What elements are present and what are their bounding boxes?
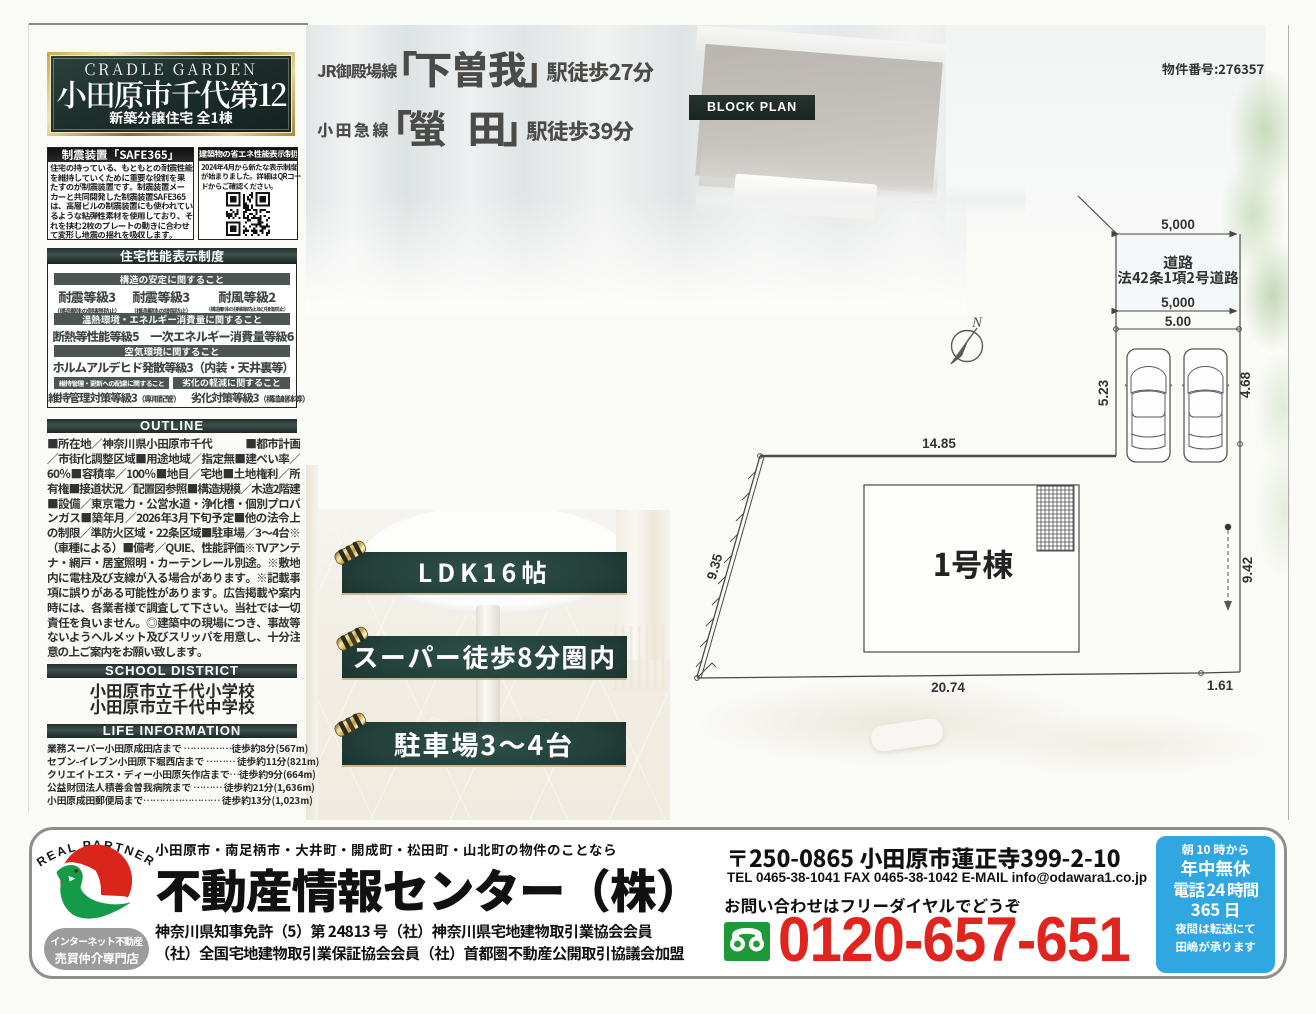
svg-text:1号棟: 1号棟 [933, 540, 1013, 585]
svg-text:N: N [971, 315, 983, 331]
svg-text:1.61: 1.61 [1207, 678, 1234, 693]
svg-text:9.35: 9.35 [704, 552, 726, 582]
svg-text:5.00: 5.00 [1165, 314, 1191, 329]
svg-text:5,000: 5,000 [1161, 295, 1195, 310]
svg-text:14.85: 14.85 [922, 436, 956, 451]
svg-text:20.74: 20.74 [931, 680, 965, 695]
svg-text:9.42: 9.42 [1240, 557, 1255, 583]
svg-text:5.23: 5.23 [1096, 379, 1111, 406]
svg-text:4.68: 4.68 [1238, 371, 1253, 398]
svg-text:法42条1項2号道路: 法42条1項2号道路 [1117, 267, 1238, 288]
svg-text:5,000: 5,000 [1161, 217, 1195, 232]
